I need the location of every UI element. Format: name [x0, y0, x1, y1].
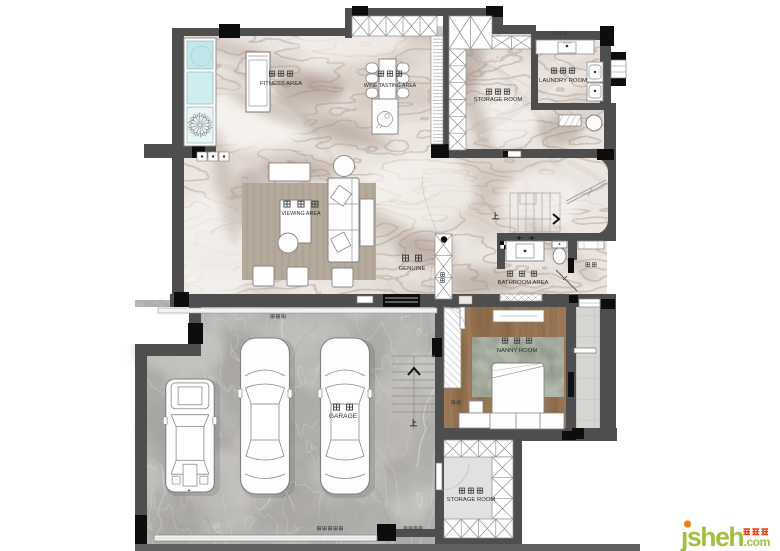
- svg-text:GARAGE: GARAGE: [329, 413, 358, 420]
- svg-text:GENUINE: GENUINE: [399, 266, 426, 272]
- svg-text:FITNESS AREA: FITNESS AREA: [260, 81, 302, 87]
- svg-text:VIEWING AREA: VIEWING AREA: [281, 211, 321, 217]
- svg-text:BATHROOM AREA: BATHROOM AREA: [498, 280, 549, 286]
- svg-text:STORAGE ROOM: STORAGE ROOM: [447, 497, 496, 503]
- svg-text:STORAGE ROOM: STORAGE ROOM: [474, 97, 523, 103]
- svg-text:WINE TASTING AREA: WINE TASTING AREA: [364, 83, 417, 89]
- svg-text:.com: .com: [744, 535, 771, 549]
- svg-text:LAUNDRY ROOM: LAUNDRY ROOM: [539, 78, 587, 84]
- svg-text:NANNY ROOM: NANNY ROOM: [497, 348, 538, 354]
